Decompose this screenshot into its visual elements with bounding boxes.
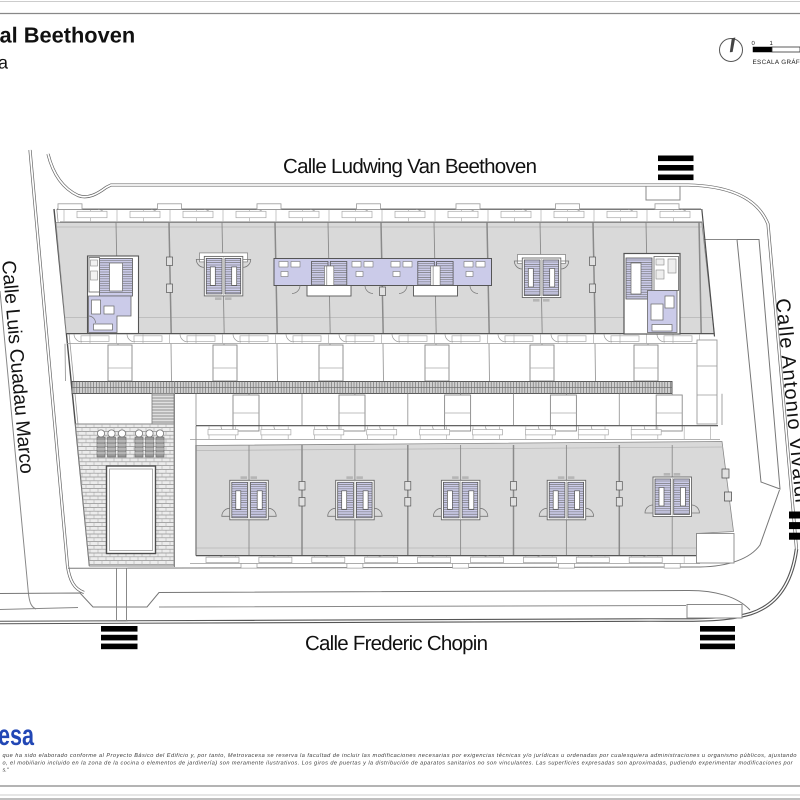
svg-text:Calle Ludwing Van Beethoven: Calle Ludwing Van Beethoven bbox=[283, 155, 537, 178]
svg-text:Calle Antonio Vivaldi: Calle Antonio Vivaldi bbox=[771, 297, 800, 503]
svg-text:o, el mobiliario incluido en l: o, el mobiliario incluido en la zona de … bbox=[3, 760, 794, 766]
svg-text:esa: esa bbox=[0, 720, 35, 752]
svg-text:1: 1 bbox=[770, 40, 774, 47]
svg-text:Calle Luis Cuadau Marco: Calle Luis Cuadau Marco bbox=[0, 260, 38, 475]
svg-text:s.": s." bbox=[3, 767, 10, 773]
svg-text:al Beethoven: al Beethoven bbox=[0, 23, 135, 48]
svg-text:a: a bbox=[0, 53, 9, 73]
svg-text:0: 0 bbox=[752, 40, 756, 47]
svg-text:que ha sido elaborado conforme: que ha sido elaborado conforme al Proyec… bbox=[3, 753, 797, 759]
svg-text:Calle Frederic Chopin: Calle Frederic Chopin bbox=[305, 632, 488, 655]
svg-text:ESCALA GRÁFICA: ESCALA GRÁFICA bbox=[753, 58, 800, 66]
